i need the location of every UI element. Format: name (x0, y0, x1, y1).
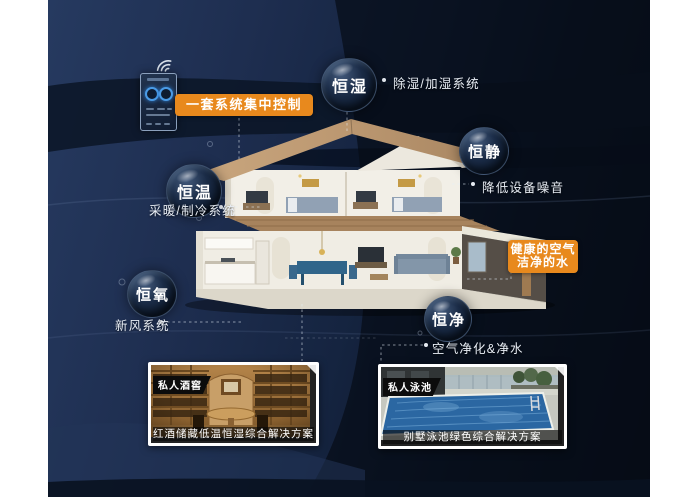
smart-control-panel (140, 73, 177, 131)
bubble-constant-humidity: 恒湿 (321, 58, 377, 112)
smart-home-infographic: 一套系统集中控制 健康的空气 洁净的水 恒湿 恒静 恒温 恒氧 恒净 除湿/加湿… (0, 0, 700, 497)
wine-cellar-photo: 私人酒窖 红酒储藏低温恒湿综合解决方案 (151, 365, 316, 443)
dial-knob-icon (159, 87, 173, 101)
pool-photo: 私人泳池 别墅泳池绿色综合解决方案 (381, 367, 564, 446)
label-air-water-purify: 空气净化&净水 (432, 338, 524, 357)
card-corner-fold (555, 367, 564, 376)
label-noise-reduction: 降低设备噪音 (482, 177, 564, 196)
house-mid-floor-slab (224, 216, 500, 231)
bubble-constant-purity: 恒净 (424, 296, 472, 342)
wine-cellar-card: 私人酒窖 红酒储藏低温恒湿综合解决方案 (148, 362, 319, 446)
label-dehumidify-system: 除湿/加湿系统 (393, 73, 480, 92)
pool-caption: 别墅泳池绿色综合解决方案 (383, 430, 562, 444)
central-control-badge: 一套系统集中控制 (175, 94, 313, 116)
label-heating-cooling: 采暖/制冷系统 (149, 200, 236, 219)
dial-knob-icon (145, 87, 159, 101)
house-upper-floor (225, 170, 460, 218)
wine-cellar-caption: 红酒储藏低温恒湿综合解决方案 (153, 427, 314, 441)
wine-cellar-tag: 私人酒窖 (153, 376, 211, 394)
panel-header-bar (147, 78, 169, 81)
healthy-air-water-badge: 健康的空气 洁净的水 (508, 240, 578, 273)
bubble-constant-quiet: 恒静 (459, 127, 509, 175)
card-corner-fold (307, 365, 316, 374)
private-pool-tag: 私人泳池 (383, 378, 441, 396)
label-fresh-air-system: 新风系统 (115, 315, 170, 334)
private-pool-card: 私人泳池 别墅泳池绿色综合解决方案 (378, 364, 567, 449)
bubble-constant-oxygen: 恒氧 (127, 270, 177, 318)
house-lower-floor (202, 231, 462, 289)
clean-water-line: 洁净的水 (508, 256, 578, 269)
